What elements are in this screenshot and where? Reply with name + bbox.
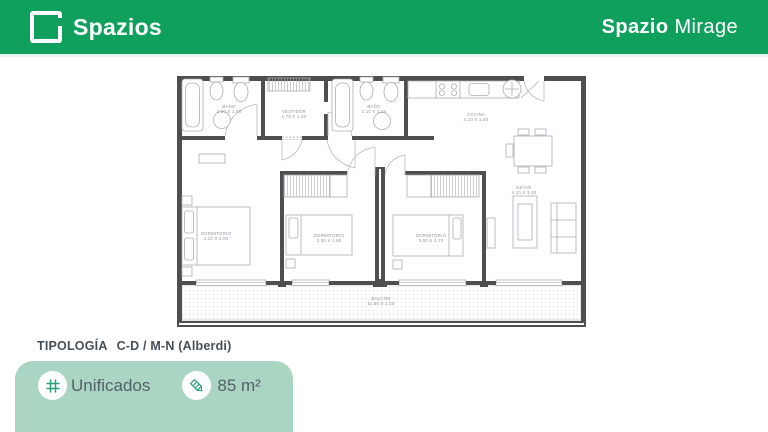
project-name-bold: Spazio [602, 16, 669, 38]
typology-value: C-D / M-N (Alberdi) [117, 339, 232, 353]
spazios-logo-icon [30, 11, 62, 43]
dashed-opening [282, 136, 302, 140]
grid-icon [38, 371, 67, 400]
ruler-pencil-icon [182, 371, 211, 400]
unified-label: Unificados [71, 376, 150, 396]
page: Spazios SpazioMirage [0, 0, 768, 432]
brand-name: Spazios [73, 14, 162, 41]
svg-text:VESTIDOR1.70 X 1.60: VESTIDOR1.70 X 1.60 [282, 109, 307, 119]
svg-text:ESTAR4.10 X 3.00: ESTAR4.10 X 3.00 [512, 185, 537, 195]
header: Spazios SpazioMirage [0, 0, 768, 57]
svg-text:DORMITORIO4.10 X 2.80: DORMITORIO4.10 X 2.80 [201, 231, 232, 241]
area-label: 85 m² [217, 376, 260, 396]
room-labels: BAÑO2.20 X 1.60VESTIDOR1.70 X 1.60BAÑO2.… [201, 104, 537, 306]
floor-plan: BAÑO2.20 X 1.60VESTIDOR1.70 X 1.60BAÑO2.… [169, 62, 599, 332]
typology-title: TIPOLOGÍAC-D / M-N (Alberdi) [37, 339, 231, 353]
unified-chip: Unificados [38, 371, 150, 400]
typology-label: TIPOLOGÍA [37, 339, 108, 353]
typology-badge: Unificados 85 m² [15, 361, 293, 432]
svg-text:DORMITORIO3.00 X 2.70: DORMITORIO3.00 X 2.70 [416, 233, 447, 243]
project-title: SpazioMirage [602, 16, 738, 39]
area-chip: 85 m² [182, 371, 260, 400]
brand: Spazios [30, 11, 162, 43]
svg-text:DORMITORIO3.00 X 2.50: DORMITORIO3.00 X 2.50 [314, 233, 345, 243]
svg-text:COCINA4.10 X 1.60: COCINA4.10 X 1.60 [464, 112, 489, 122]
svg-text:BAÑO2.10 X 1.60: BAÑO2.10 X 1.60 [362, 104, 387, 114]
project-name-light: Mirage [674, 16, 738, 38]
svg-text:BAÑO2.20 X 1.60: BAÑO2.20 X 1.60 [217, 104, 242, 114]
